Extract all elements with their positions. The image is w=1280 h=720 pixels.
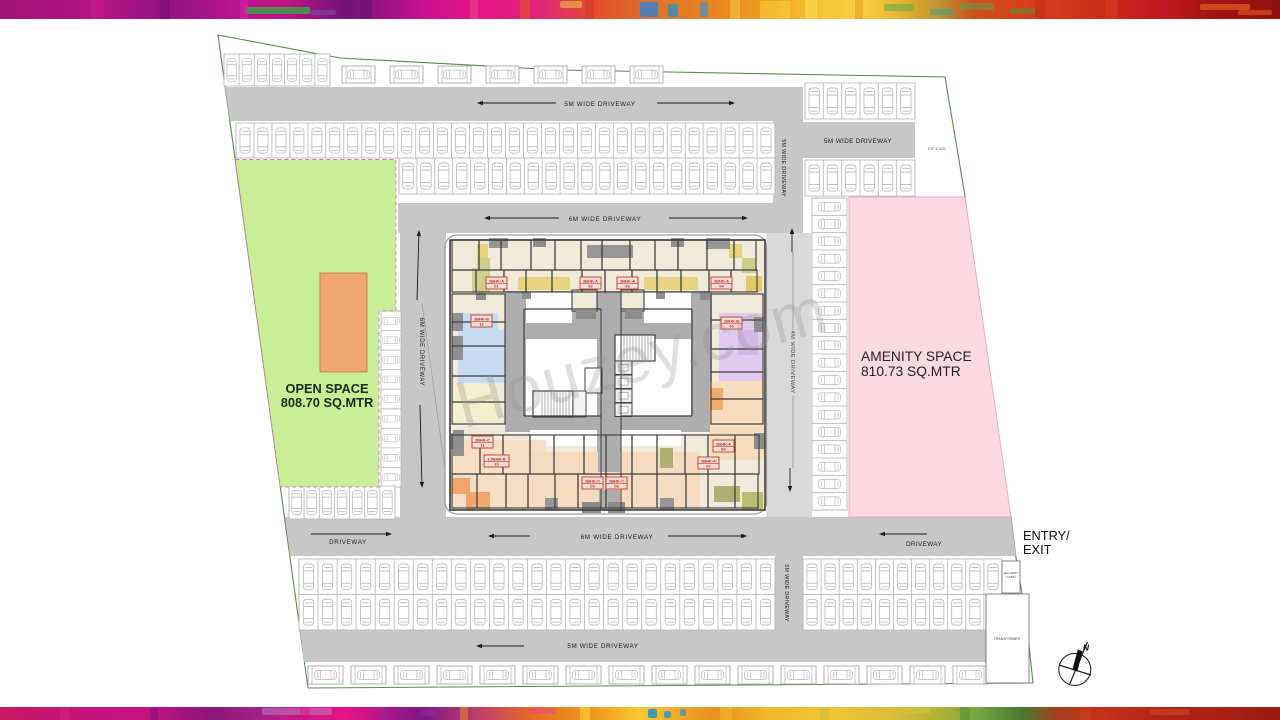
svg-text:10: 10 <box>494 461 499 466</box>
svg-text:OPEN SPACE: OPEN SPACE <box>286 381 369 396</box>
svg-text:06: 06 <box>721 446 726 451</box>
svg-text:6M WIDE DRIVEWAY: 6M WIDE DRIVEWAY <box>581 534 654 541</box>
svg-text:AMENITY SPACE: AMENITY SPACE <box>861 349 972 364</box>
svg-text:810.73 SQ.MTR: 810.73 SQ.MTR <box>861 364 961 379</box>
svg-text:01: 01 <box>494 283 499 288</box>
svg-text:808.70 SQ.MTR: 808.70 SQ.MTR <box>281 395 373 410</box>
svg-text:DRIVEWAY: DRIVEWAY <box>906 541 942 548</box>
svg-text:6M WIDE DRIVEWAY: 6M WIDE DRIVEWAY <box>418 318 424 386</box>
svg-text:09: 09 <box>590 483 595 488</box>
svg-text:STP & UGC: STP & UGC <box>928 147 947 151</box>
svg-text:5M WIDE DRIVEWAY: 5M WIDE DRIVEWAY <box>824 138 892 145</box>
svg-text:12: 12 <box>479 321 484 326</box>
svg-text:07: 07 <box>706 463 711 468</box>
svg-text:02: 02 <box>588 283 593 288</box>
svg-text:04: 04 <box>719 283 724 288</box>
svg-text:5M WIDE DRIVEWAY: 5M WIDE DRIVEWAY <box>564 101 635 108</box>
svg-text:TRANSFORMER: TRANSFORMER <box>994 637 1021 641</box>
svg-text:5M WIDE DRIVEWAY: 5M WIDE DRIVEWAY <box>567 643 638 650</box>
svg-text:EXIT: EXIT <box>1023 542 1052 557</box>
svg-text:5M WIDE DRIVEWAY: 5M WIDE DRIVEWAY <box>780 139 786 197</box>
svg-text:DRIVEWAY: DRIVEWAY <box>329 539 367 546</box>
svg-text:N: N <box>1083 643 1090 653</box>
svg-text:ENTRY/: ENTRY/ <box>1023 528 1070 543</box>
svg-text:5M WIDE DRIVEWAY: 5M WIDE DRIVEWAY <box>783 564 789 622</box>
svg-text:08: 08 <box>614 483 619 488</box>
svg-text:CABIN: CABIN <box>1006 575 1015 579</box>
svg-text:6M WIDE DRIVEWAY: 6M WIDE DRIVEWAY <box>569 216 642 223</box>
svg-text:03: 03 <box>625 283 630 288</box>
